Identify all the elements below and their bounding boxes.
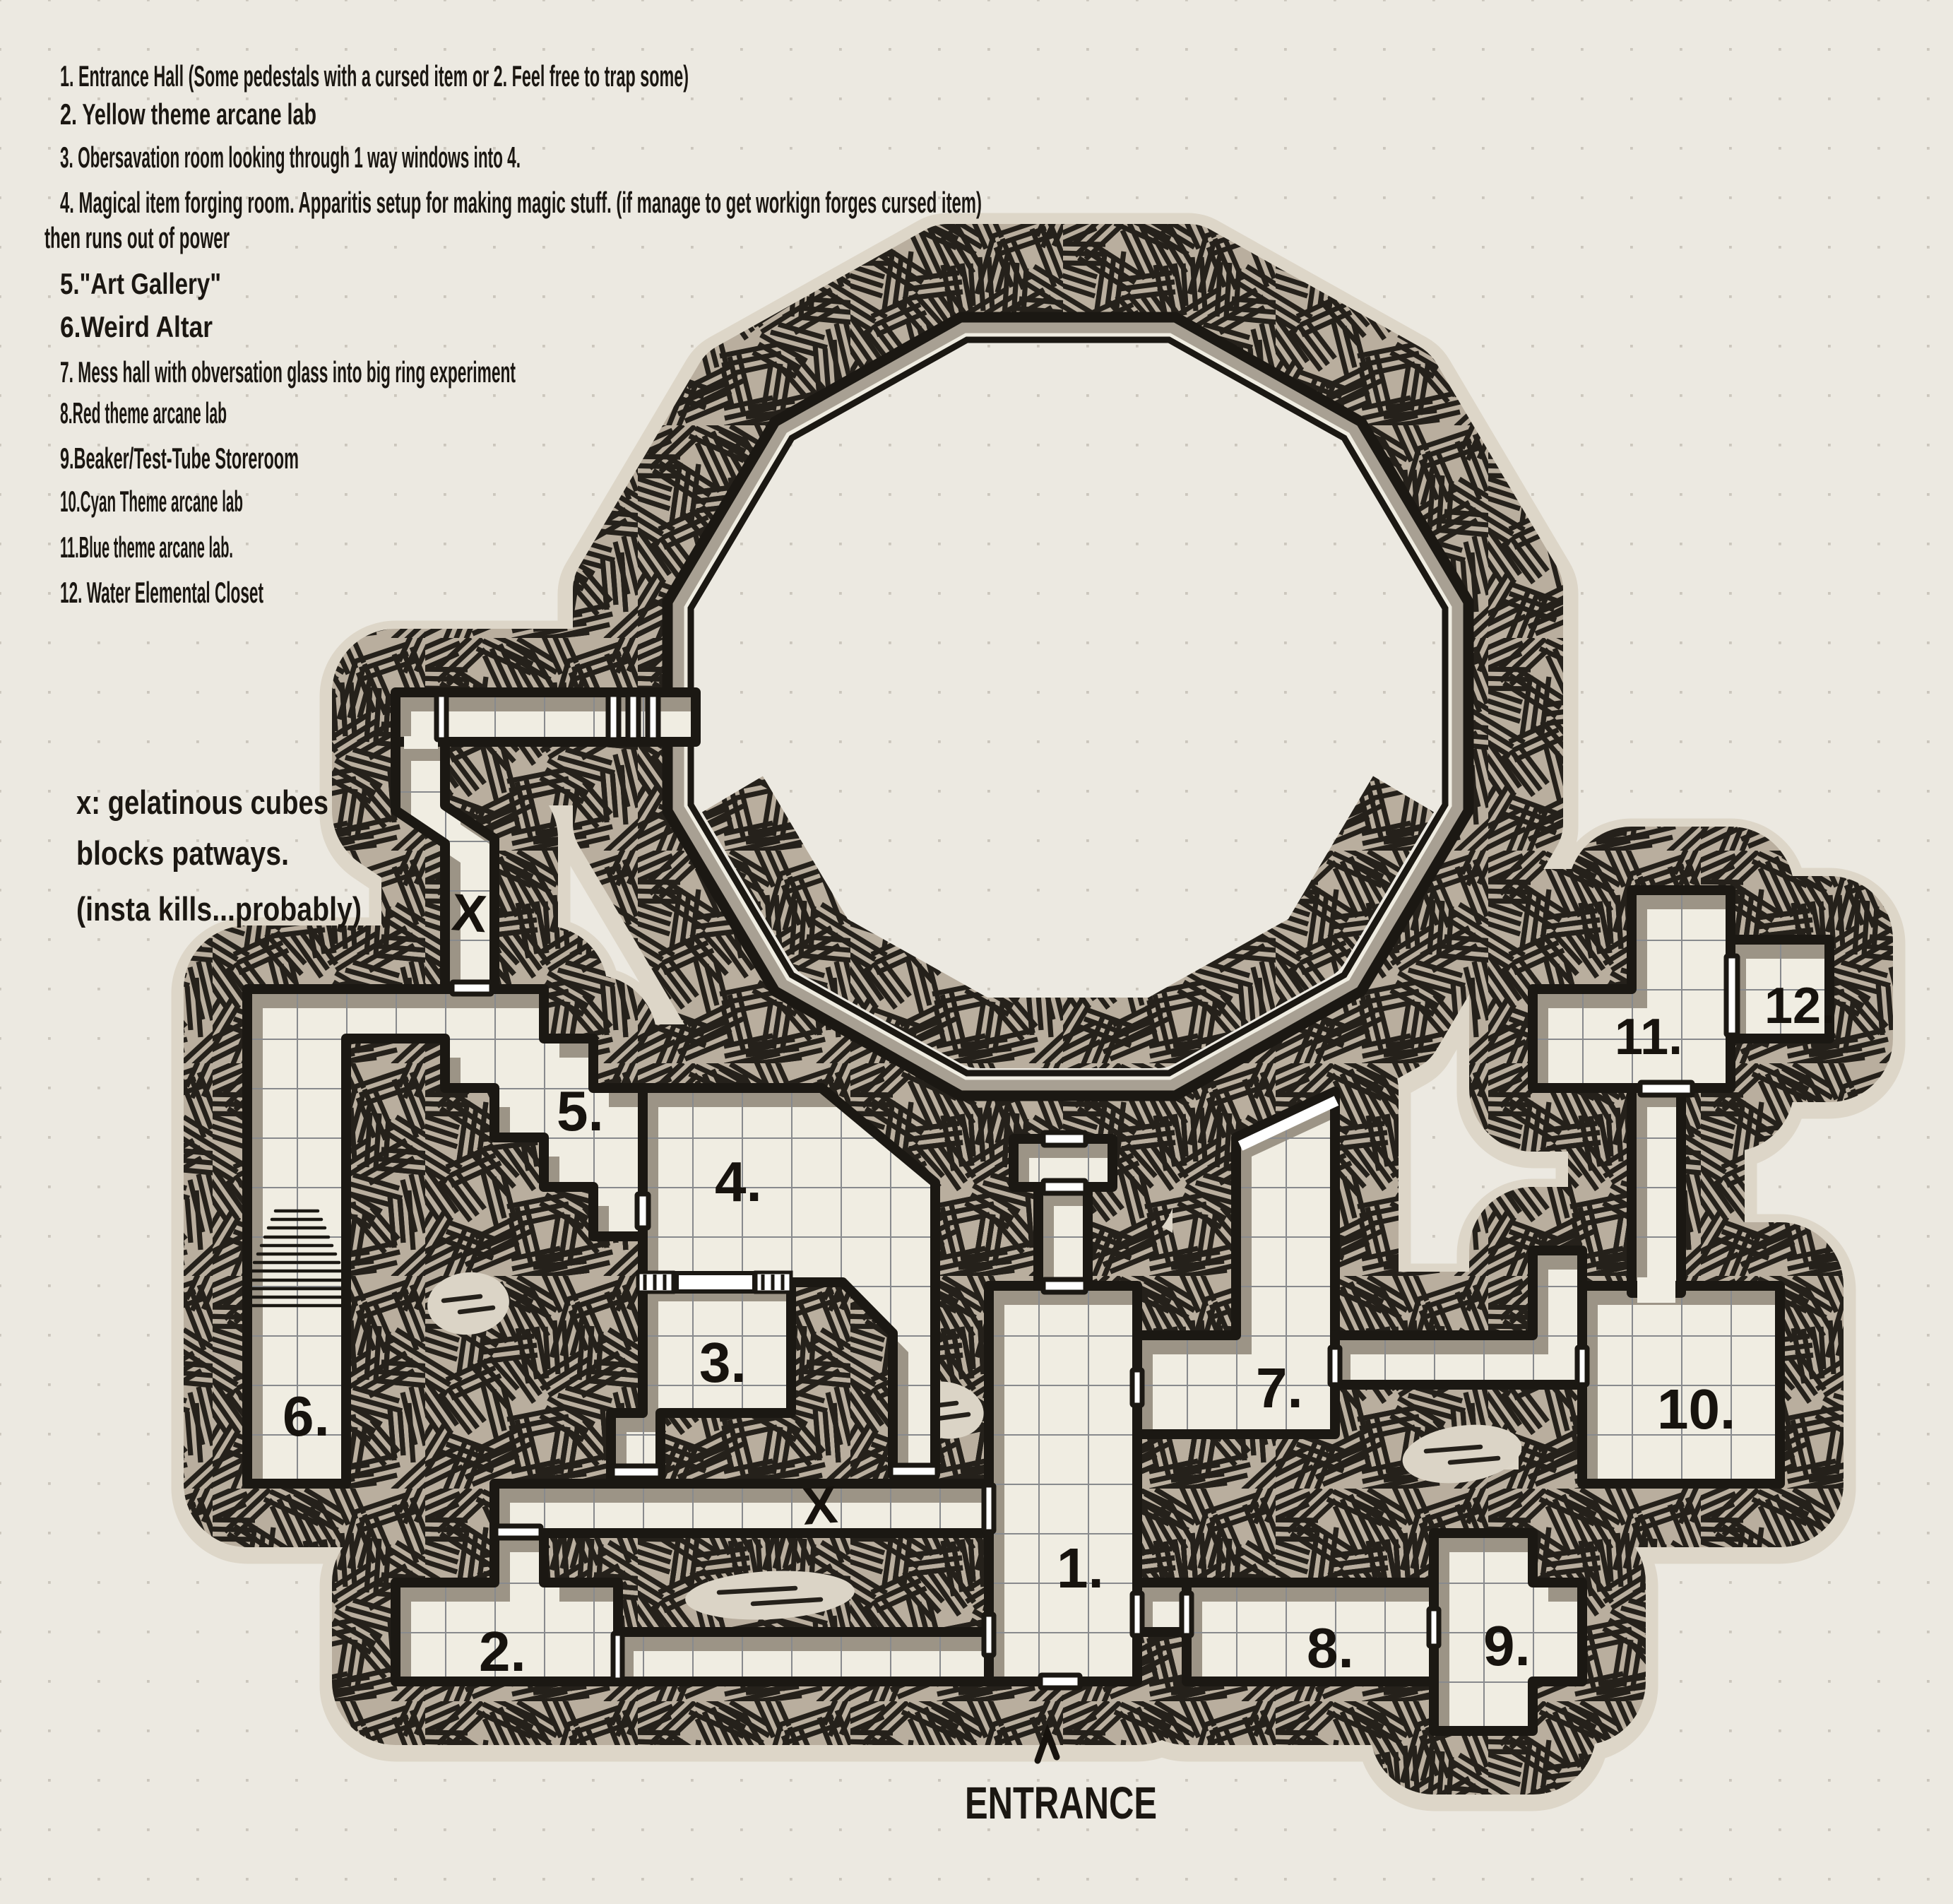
svg-text:11.Blue theme arcane lab.: 11.Blue theme arcane lab. [60,531,233,564]
svg-text:9.: 9. [1483,1614,1531,1677]
svg-text:12.: 12. [1764,978,1835,1034]
svg-text:(insta kills...probably): (insta kills...probably) [76,890,362,928]
svg-text:7. Mess hall with obversation: 7. Mess hall with obversation glass into… [60,355,516,389]
svg-text:2. Yellow theme arcane lab: 2. Yellow theme arcane lab [60,97,316,131]
svg-text:3.: 3. [699,1331,747,1394]
svg-text:7.: 7. [1256,1356,1303,1419]
svg-text:10.Cyan Theme arcane lab: 10.Cyan Theme arcane lab [60,485,243,518]
svg-text:10.: 10. [1657,1378,1735,1441]
svg-text:5."Art Gallery": 5."Art Gallery" [60,267,221,300]
svg-text:blocks patways.: blocks patways. [76,834,289,872]
svg-text:1.: 1. [1057,1537,1104,1600]
svg-text:8.: 8. [1307,1616,1354,1679]
svg-text:x: gelatinous cubes: x: gelatinous cubes [76,784,328,821]
svg-text:ENTRANCE: ENTRANCE [965,1778,1157,1828]
svg-text:4.: 4. [715,1150,762,1213]
svg-text:3. Obersavation room looking t: 3. Obersavation room looking through 1 w… [60,141,521,174]
svg-text:X: X [800,1475,839,1536]
svg-text:11.: 11. [1615,1009,1682,1065]
svg-text:2.: 2. [479,1620,526,1683]
svg-text:5.: 5. [557,1080,604,1142]
svg-text:9.Beaker/Test-Tube Storeroom: 9.Beaker/Test-Tube Storeroom [60,442,299,475]
svg-text:X: X [450,882,489,943]
svg-text:then runs out of power: then runs out of power [44,221,230,254]
svg-text:6.Weird Altar: 6.Weird Altar [60,310,213,343]
svg-text:6.: 6. [283,1385,330,1448]
svg-text:12. Water Elemental Closet: 12. Water Elemental Closet [60,576,263,609]
svg-text:4. Magical item forging room.: 4. Magical item forging room. Apparitis … [60,186,982,219]
svg-text:8.Red theme arcane lab: 8.Red theme arcane lab [60,396,227,430]
svg-text:1. Entrance Hall (Some pedesta: 1. Entrance Hall (Some pedestals with a … [60,59,689,93]
